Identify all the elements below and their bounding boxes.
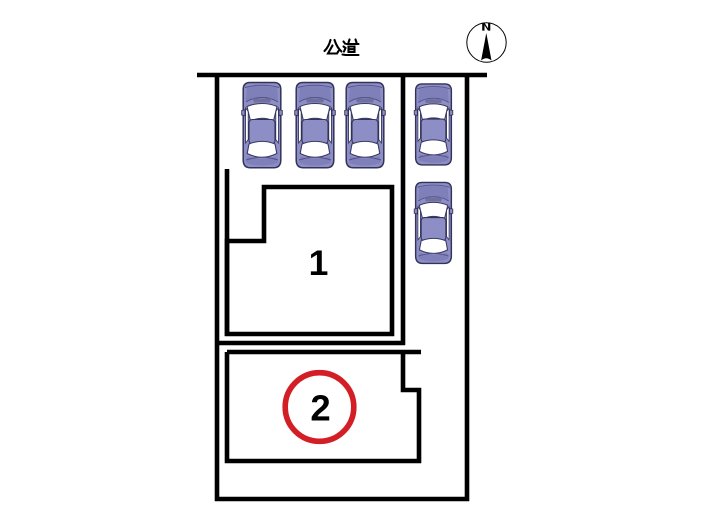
svg-text:1: 1 bbox=[309, 243, 329, 283]
svg-text:2: 2 bbox=[310, 388, 330, 429]
